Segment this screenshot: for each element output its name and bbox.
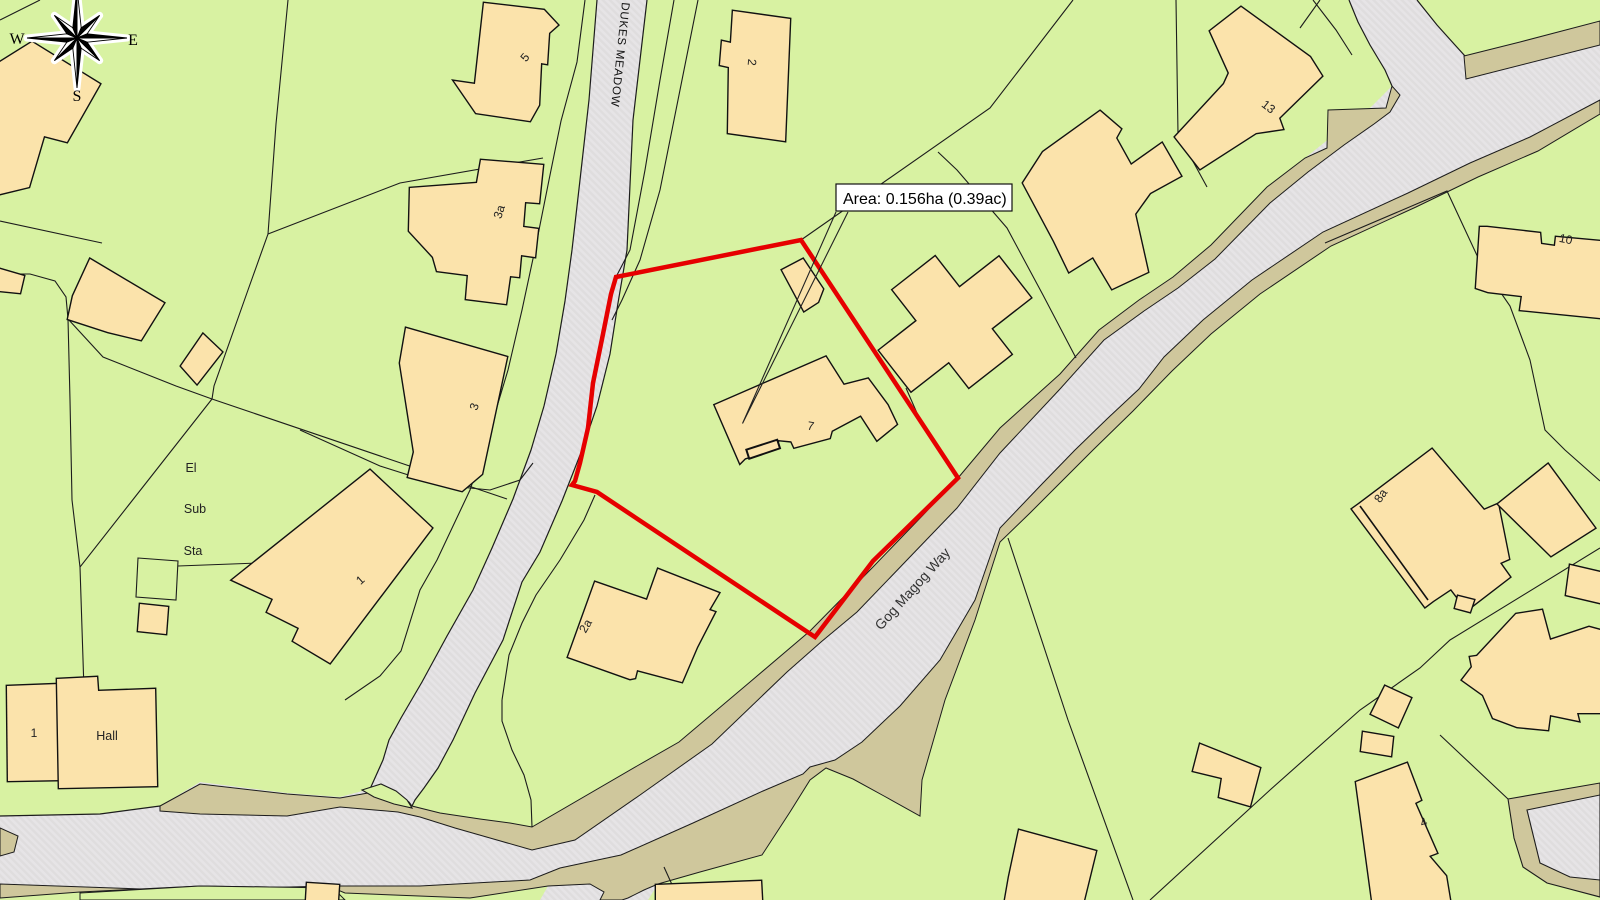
svg-text:1: 1 [31,726,38,740]
svg-text:Area: 0.156ha (0.39ac): Area: 0.156ha (0.39ac) [843,191,1007,208]
svg-text:Sub: Sub [184,502,206,516]
svg-text:Sta: Sta [184,544,203,558]
svg-text:S: S [73,88,82,105]
svg-text:El: El [185,461,196,475]
svg-text:W: W [9,31,25,48]
svg-text:Hall: Hall [96,729,118,743]
svg-text:E: E [128,32,138,49]
